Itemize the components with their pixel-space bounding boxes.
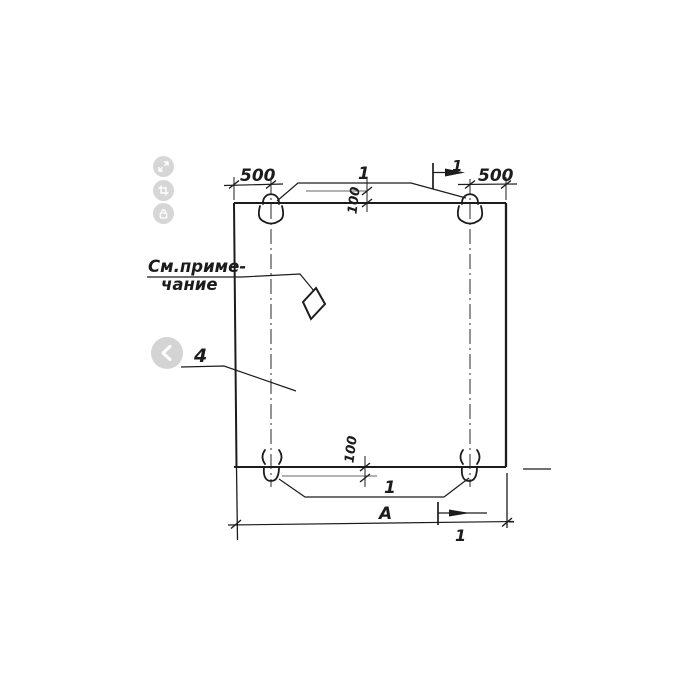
callout-panel: 4 (181, 345, 296, 391)
dimension-100-bottom: 100 (282, 435, 377, 487)
diamond-mark (303, 288, 325, 319)
technical-drawing-canvas: 500 500 1 100 1 См.п (0, 0, 700, 700)
note-line1: См.приме- (148, 257, 246, 276)
dim-top-right-value: 500 (478, 166, 514, 186)
callout-loops-bottom-label: 1 (384, 478, 396, 498)
image-viewer-stage: 500 500 1 100 1 См.п (0, 0, 700, 700)
section-mark-bottom-label: 1 (455, 526, 466, 545)
callout-loops-top-label: 1 (358, 164, 370, 184)
section-mark-top-label: 1 (452, 157, 462, 175)
lifting-loop-bottom-left (263, 450, 282, 481)
callout-loops-top: 1 (277, 164, 466, 201)
callout-panel-label: 4 (193, 345, 207, 367)
dim-100-top-value: 100 (345, 186, 363, 215)
section-mark-bottom: 1 (438, 502, 487, 545)
loop-centerlines (271, 179, 470, 487)
dim-100-bottom-value: 100 (342, 435, 360, 464)
dimension-100-top: 100 (306, 179, 372, 215)
dim-overall-width-value: А (377, 504, 392, 524)
callout-loops-bottom: 1 (279, 478, 469, 498)
note-line2: чание (161, 275, 218, 294)
dim-top-left-value: 500 (240, 166, 276, 186)
dimension-overall-width: А (228, 504, 514, 529)
